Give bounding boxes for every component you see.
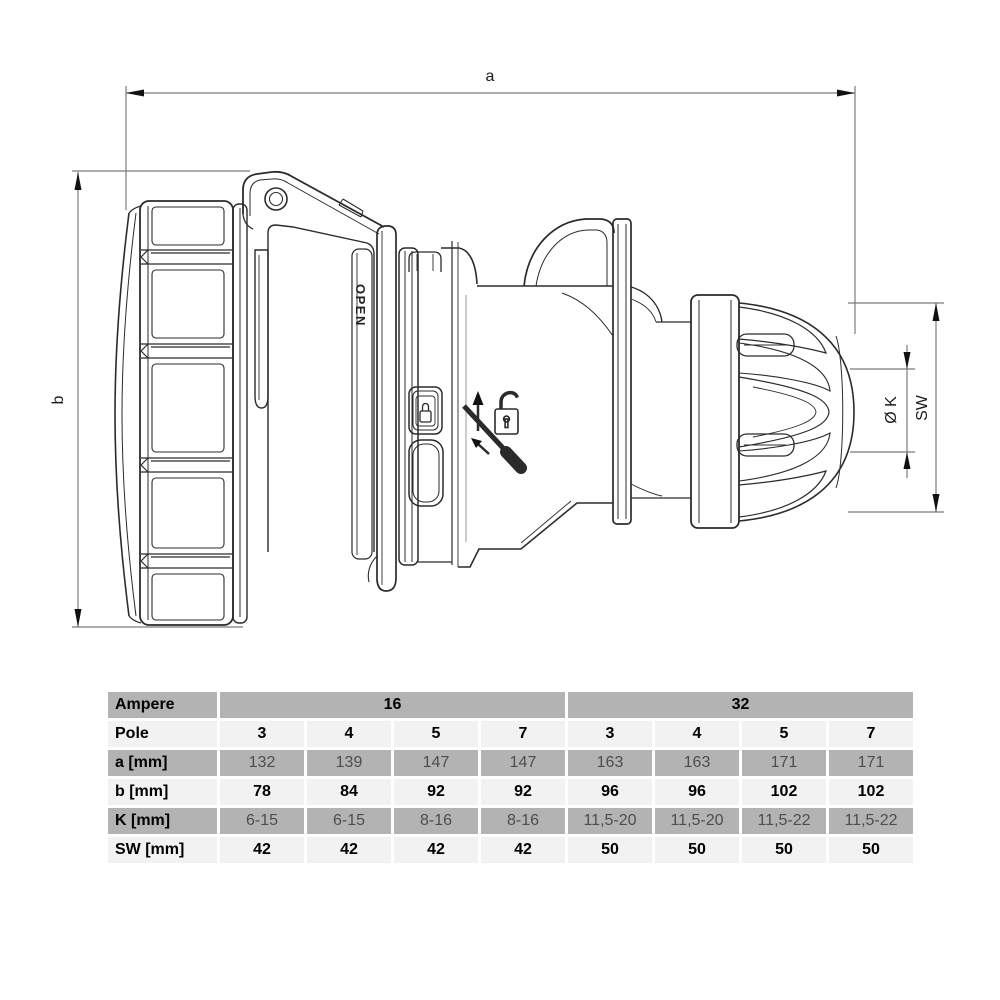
handle-loop: [524, 219, 614, 286]
table-cell: 32: [568, 692, 913, 718]
row-label: SW [mm]: [108, 837, 217, 863]
table-cell: 16: [220, 692, 565, 718]
table-row-sw: SW [mm] 42 42 42 42 50 50 50 50: [108, 837, 913, 863]
technical-drawing: a b SW Ø K: [0, 0, 1000, 686]
table-cell: 171: [829, 750, 913, 776]
dimension-table: Ampere 16 32 Pole 3 4 5 7 3 4 5 7 a [mm]…: [105, 689, 916, 866]
table-cell: 42: [307, 837, 391, 863]
dim-b-label: b: [50, 395, 67, 404]
ring-grooves: [141, 250, 232, 568]
table-cell: 96: [655, 779, 739, 805]
row-label: K [mm]: [108, 808, 217, 834]
rear-flange: [613, 219, 631, 524]
hinge-hole: [265, 188, 287, 210]
table-cell: 50: [829, 837, 913, 863]
table-cell: 96: [568, 779, 652, 805]
table-cell: 11,5-20: [655, 808, 739, 834]
row-label: Ampere: [108, 692, 217, 718]
table-cell: 102: [742, 779, 826, 805]
dimension-k: Ø K: [850, 345, 915, 478]
table-cell: 4: [655, 721, 739, 747]
table-cell: 11,5-22: [829, 808, 913, 834]
table-cell: 50: [742, 837, 826, 863]
table-cell: 84: [307, 779, 391, 805]
locking-slider: [409, 387, 442, 434]
table-cell: 78: [220, 779, 304, 805]
dim-k-label: Ø K: [883, 396, 900, 424]
table-cell: 8-16: [394, 808, 478, 834]
padlock-icon: [420, 404, 431, 423]
table-cell: 147: [481, 750, 565, 776]
top-clip: [409, 252, 441, 272]
table-cell: 42: [220, 837, 304, 863]
table-cell: 3: [568, 721, 652, 747]
table-cell: 3: [220, 721, 304, 747]
table-cell: 6-15: [220, 808, 304, 834]
table-cell: 171: [742, 750, 826, 776]
coupling-ring: [140, 201, 247, 625]
row-label: Pole: [108, 721, 217, 747]
table-cell: 139: [307, 750, 391, 776]
unlock-instruction-icon: [464, 391, 521, 468]
coupling-ring-back-rim: [115, 206, 141, 623]
page: a b SW Ø K: [0, 0, 1000, 1000]
open-label: OPEN: [353, 284, 368, 327]
table-cell: 7: [829, 721, 913, 747]
table-row-b: b [mm] 78 84 92 92 96 96 102 102: [108, 779, 913, 805]
table-cell: 8-16: [481, 808, 565, 834]
table-cell: 92: [481, 779, 565, 805]
connector-drawing: OPEN: [115, 172, 854, 625]
table-cell: 50: [655, 837, 739, 863]
cable-gland-nut: [691, 295, 739, 528]
table-cell: 147: [394, 750, 478, 776]
table-cell: 102: [829, 779, 913, 805]
table-row-pole: Pole 3 4 5 7 3 4 5 7: [108, 721, 913, 747]
dim-a-label: a: [486, 68, 495, 85]
table-row-a: a [mm] 132 139 147 147 163 163 171 171: [108, 750, 913, 776]
table-row-k: K [mm] 6-15 6-15 8-16 8-16 11,5-20 11,5-…: [108, 808, 913, 834]
strain-relief-crown: [737, 303, 854, 521]
grip-recess: [409, 440, 443, 506]
table-cell: 132: [220, 750, 304, 776]
table-cell: 50: [568, 837, 652, 863]
cover-tongue: [255, 250, 268, 408]
table-cell: 5: [742, 721, 826, 747]
cable-shoulder: [631, 287, 691, 498]
table-cell: 5: [394, 721, 478, 747]
table-cell: 92: [394, 779, 478, 805]
screwdriver-icon: [464, 406, 521, 468]
table-cell: 6-15: [307, 808, 391, 834]
cover-hinge: [243, 172, 384, 234]
dimension-b: b: [50, 171, 250, 627]
dim-sw-label: SW: [914, 394, 931, 421]
open-padlock-icon: [495, 393, 518, 434]
table-cell: 42: [394, 837, 478, 863]
row-label: b [mm]: [108, 779, 217, 805]
row-label: a [mm]: [108, 750, 217, 776]
table-cell: 163: [655, 750, 739, 776]
table-row-ampere: Ampere 16 32: [108, 692, 913, 718]
body-profile: [418, 248, 613, 567]
table-cell: 42: [481, 837, 565, 863]
table-cell: 163: [568, 750, 652, 776]
table-cell: 11,5-22: [742, 808, 826, 834]
table-cell: 7: [481, 721, 565, 747]
diagonal-arrow-icon: [471, 438, 489, 454]
dimension-a: a: [126, 68, 855, 334]
protective-cover: OPEN: [268, 225, 396, 591]
table-cell: 4: [307, 721, 391, 747]
ring-knurl-faces: [152, 207, 224, 620]
table-cell: 11,5-20: [568, 808, 652, 834]
